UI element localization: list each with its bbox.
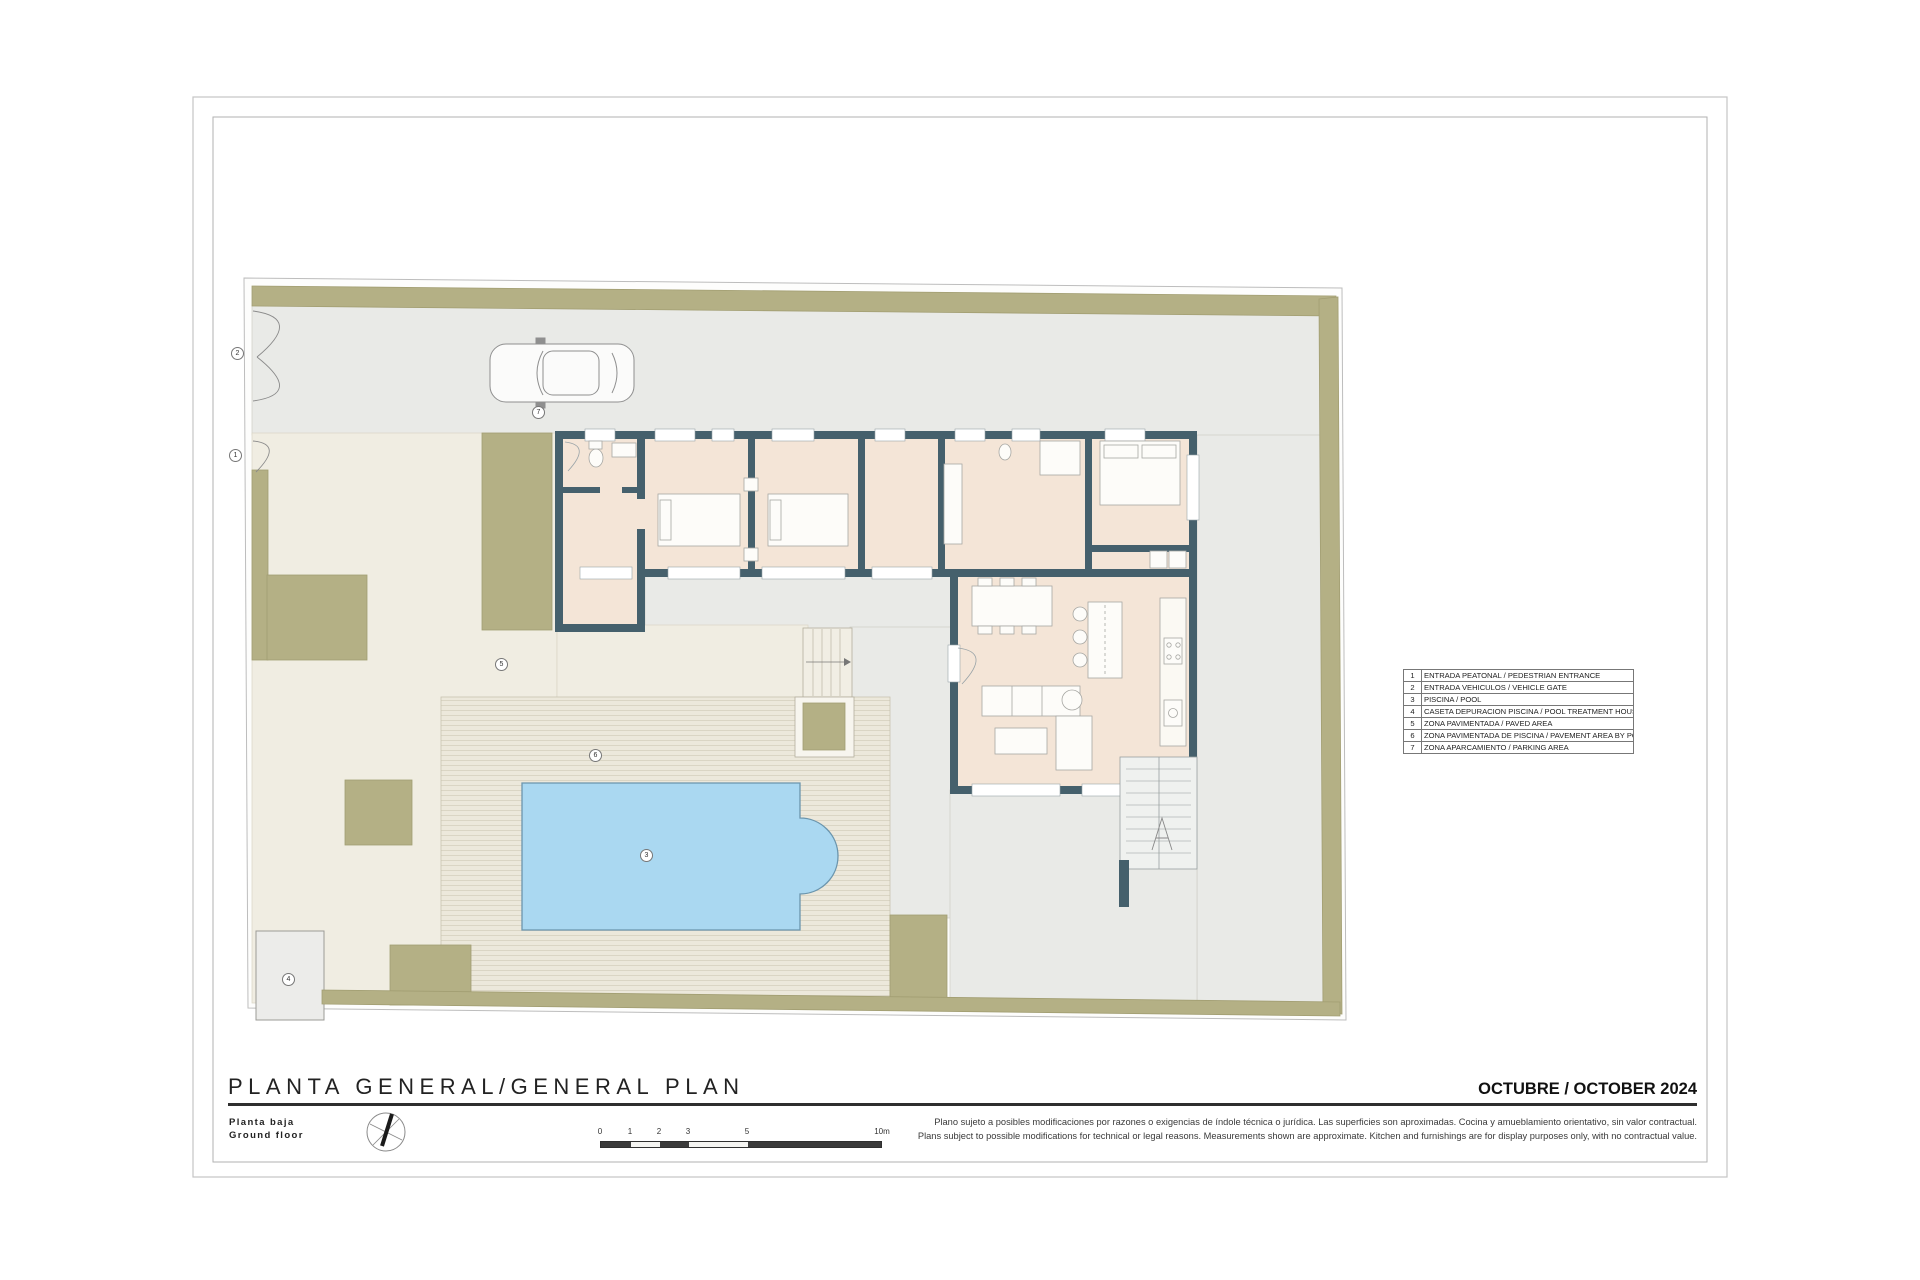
scale-tick-10m: 10m (874, 1127, 890, 1136)
marker-paved-area: 5 (495, 658, 508, 671)
marker-pedestrian-entrance: 1 (229, 449, 242, 462)
pool (522, 783, 838, 930)
marker-pool-treatment-house: 4 (282, 973, 295, 986)
terrace-south-wing (645, 575, 958, 629)
parking-area (252, 305, 1330, 437)
page-title: PLANTA GENERAL/GENERAL PLAN (228, 1074, 745, 1100)
scale-segment (601, 1142, 631, 1147)
green-strip-west (252, 470, 268, 660)
hedge-right (1319, 297, 1342, 1014)
legend-num: 1 (1404, 670, 1422, 682)
scale-tick-0: 0 (598, 1127, 602, 1136)
scale-segment (689, 1142, 748, 1147)
legend-label: ZONA PAVIMENTADA DE PISCINA / PAVEMENT A… (1422, 730, 1634, 742)
scale-segment (660, 1142, 689, 1147)
disclaimer: Plano sujeto a posibles modificaciones p… (697, 1116, 1697, 1143)
disclaimer-es: Plano sujeto a posibles modificaciones p… (697, 1116, 1697, 1130)
legend-num: 5 (1404, 718, 1422, 730)
legend-label: ZONA PAVIMENTADA / PAVED AREA (1422, 718, 1634, 730)
legend-num: 3 (1404, 694, 1422, 706)
legend-row: 6ZONA PAVIMENTADA DE PISCINA / PAVEMENT … (1404, 730, 1634, 742)
legend-label: ZONA APARCAMIENTO / PARKING AREA (1422, 742, 1634, 754)
legend-row: 7ZONA APARCAMIENTO / PARKING AREA (1404, 742, 1634, 754)
floor-label: Planta baja Ground floor (229, 1116, 304, 1142)
floor-label-en: Ground floor (229, 1129, 304, 1142)
title-rule (228, 1103, 1697, 1106)
scale-tick-2: 2 (657, 1127, 661, 1136)
deck-steps (803, 628, 852, 697)
site-plan (244, 278, 1346, 1020)
legend-row: 5ZONA PAVIMENTADA / PAVED AREA (1404, 718, 1634, 730)
green-square-southeast (890, 915, 947, 1003)
marker-pavement-by-pool: 6 (589, 749, 602, 762)
green-square-west (267, 575, 367, 660)
legend-table: 1ENTRADA PEATONAL / PEDESTRIAN ENTRANCE … (1403, 669, 1634, 754)
entry-floor (563, 439, 637, 624)
legend-num: 2 (1404, 682, 1422, 694)
scale-segment (631, 1142, 660, 1147)
legend-num: 7 (1404, 742, 1422, 754)
date-label: OCTUBRE / OCTOBER 2024 (1097, 1080, 1697, 1099)
legend-label: ENTRADA PEATONAL / PEDESTRIAN ENTRANCE (1422, 670, 1634, 682)
green-rect-by-house (482, 433, 552, 630)
scale-bar (600, 1141, 882, 1148)
marker-pool: 3 (640, 849, 653, 862)
legend-label: ENTRADA VEHICULOS / VEHICLE GATE (1422, 682, 1634, 694)
legend-row: 4CASETA DEPURACION PISCINA / POOL TREATM… (1404, 706, 1634, 718)
legend-label: PISCINA / POOL (1422, 694, 1634, 706)
legend-num: 6 (1404, 730, 1422, 742)
paved-walk (557, 625, 808, 699)
marker-vehicle-gate: 2 (231, 347, 244, 360)
scale-tick-5: 5 (745, 1127, 749, 1136)
legend-row: 1ENTRADA PEATONAL / PEDESTRIAN ENTRANCE (1404, 670, 1634, 682)
floor-label-es: Planta baja (229, 1116, 304, 1129)
terrace-east (1197, 435, 1330, 1003)
scale-tick-1: 1 (628, 1127, 632, 1136)
legend-label: CASETA DEPURACION PISCINA / POOL TREATME… (1422, 706, 1634, 718)
marker-parking-area: 7 (532, 406, 545, 419)
drawing-canvas: 1 2 3 4 5 6 7 1ENTRADA PEATONAL / PEDEST… (0, 0, 1920, 1280)
legend-num: 4 (1404, 706, 1422, 718)
scale-tick-3: 3 (686, 1127, 690, 1136)
legend-row: 3PISCINA / POOL (1404, 694, 1634, 706)
legend-row: 2ENTRADA VEHICULOS / VEHICLE GATE (1404, 682, 1634, 694)
scale-segment (748, 1142, 881, 1147)
green-planter-deck (803, 703, 845, 750)
green-square-mid (345, 780, 412, 845)
car-icon (490, 338, 634, 408)
